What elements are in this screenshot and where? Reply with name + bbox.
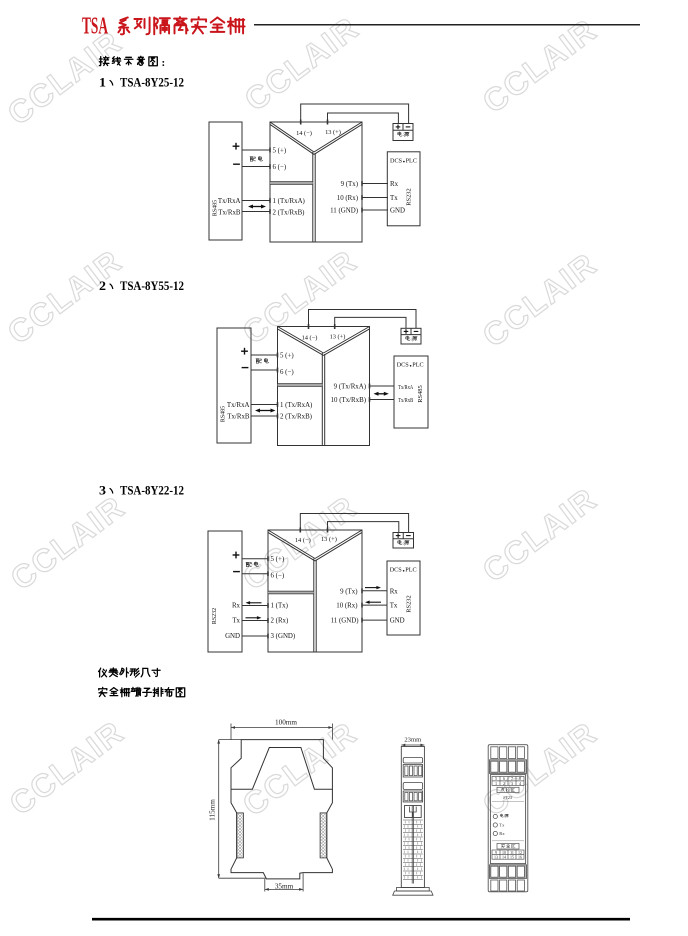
svg-text:GND: GND — [225, 633, 240, 640]
svg-text:PLC: PLC — [405, 567, 416, 574]
svg-text:PLC: PLC — [412, 362, 423, 369]
svg-text:10 (Rx): 10 (Rx) — [336, 603, 357, 610]
svg-text:8Y25: 8Y25 — [503, 795, 513, 800]
svg-text:13 (+): 13 (+) — [321, 536, 337, 543]
svg-text:Rx: Rx — [390, 588, 399, 595]
svg-text:9 (Tx): 9 (Tx) — [340, 589, 357, 596]
svg-text:DCS: DCS — [390, 157, 403, 164]
svg-text:2 (Tx/RxB): 2 (Tx/RxB) — [280, 414, 312, 421]
svg-text:1: 1 — [99, 75, 106, 90]
svg-text:3 (GND): 3 (GND) — [271, 633, 296, 640]
svg-text:RS232: RS232 — [405, 595, 412, 612]
svg-text:9 (Tx): 9 (Tx) — [341, 181, 358, 188]
svg-text:TSA: TSA — [82, 14, 108, 40]
svg-text:Tx: Tx — [390, 195, 398, 202]
svg-text:Tx/RxB: Tx/RxB — [398, 398, 413, 404]
svg-text:10 (Tx/RxB): 10 (Tx/RxB) — [331, 397, 366, 404]
svg-text:Tx/RxA: Tx/RxA — [218, 198, 241, 205]
svg-text:Tx/RxA: Tx/RxA — [227, 402, 250, 409]
svg-text:2 (Rx): 2 (Rx) — [271, 618, 289, 625]
svg-text:115mm: 115mm — [209, 799, 217, 821]
svg-text:100mm: 100mm — [275, 719, 297, 727]
svg-text:TSA-8Y22-12: TSA-8Y22-12 — [120, 483, 184, 498]
svg-text:2 (Tx/RxB): 2 (Tx/RxB) — [273, 209, 305, 216]
svg-text:RS485: RS485 — [417, 385, 424, 402]
svg-text:2: 2 — [99, 278, 106, 293]
svg-text:1 (Tx/RxA): 1 (Tx/RxA) — [280, 402, 312, 409]
svg-text:Tx: Tx — [390, 603, 398, 610]
svg-text:4: 4 — [519, 781, 522, 786]
svg-text:3: 3 — [99, 483, 107, 498]
svg-text:RS485: RS485 — [213, 200, 219, 216]
svg-text:11 (GND): 11 (GND) — [331, 618, 359, 625]
svg-text:DCS: DCS — [397, 362, 410, 369]
svg-text:13: 13 — [494, 855, 498, 860]
svg-text:GND: GND — [390, 618, 405, 625]
svg-text:Tx/RxA: Tx/RxA — [398, 385, 414, 391]
svg-text:6 (−): 6 (−) — [280, 369, 294, 376]
svg-text:Tx/RxB: Tx/RxB — [218, 209, 241, 216]
svg-text:Rx: Rx — [232, 603, 241, 610]
svg-text:GND: GND — [390, 208, 405, 215]
svg-text::: : — [162, 57, 166, 69]
svg-text:Tx: Tx — [232, 618, 240, 625]
svg-text:PLC: PLC — [406, 157, 417, 164]
svg-text:13 (+): 13 (+) — [330, 333, 346, 340]
svg-text:9 (Tx/RxA): 9 (Tx/RxA) — [334, 383, 366, 390]
svg-text:15: 15 — [510, 855, 514, 860]
svg-text:23mm: 23mm — [404, 737, 422, 744]
svg-text:10 (Rx): 10 (Rx) — [337, 195, 358, 202]
svg-text:6 (−): 6 (−) — [271, 573, 285, 580]
svg-text:5 (+): 5 (+) — [280, 352, 294, 359]
svg-text:RS232: RS232 — [405, 188, 412, 205]
svg-text:16: 16 — [518, 855, 522, 860]
svg-text:5 (+): 5 (+) — [271, 556, 285, 563]
svg-text:Tx/RxB: Tx/RxB — [227, 414, 250, 421]
svg-text:13 (+): 13 (+) — [325, 129, 341, 136]
svg-text:14 (−): 14 (−) — [302, 334, 318, 341]
svg-text:35mm: 35mm — [275, 882, 294, 890]
svg-text:TSA-8Y25-12: TSA-8Y25-12 — [120, 75, 184, 90]
svg-text:5 (+): 5 (+) — [273, 147, 287, 154]
svg-text:14 (−): 14 (−) — [296, 130, 312, 137]
svg-text:14: 14 — [502, 855, 506, 860]
svg-text:2: 2 — [503, 781, 505, 786]
svg-text:DCS: DCS — [390, 567, 403, 574]
svg-text:11 (GND): 11 (GND) — [330, 208, 358, 215]
svg-text:Tx: Tx — [499, 823, 505, 828]
svg-text:RS485: RS485 — [221, 406, 227, 422]
svg-text:14 (−): 14 (−) — [295, 537, 311, 544]
svg-text:RS232: RS232 — [212, 608, 218, 624]
svg-text:Rx: Rx — [499, 831, 505, 836]
svg-text:3: 3 — [511, 781, 513, 786]
svg-text:TSA-8Y55-12: TSA-8Y55-12 — [120, 278, 184, 293]
svg-text:1: 1 — [495, 781, 497, 786]
svg-text:6 (−): 6 (−) — [273, 164, 287, 171]
svg-text:1 (Tx/RxA): 1 (Tx/RxA) — [273, 198, 305, 205]
svg-text:Rx: Rx — [390, 181, 399, 188]
svg-text:1 (Tx): 1 (Tx) — [271, 603, 288, 610]
